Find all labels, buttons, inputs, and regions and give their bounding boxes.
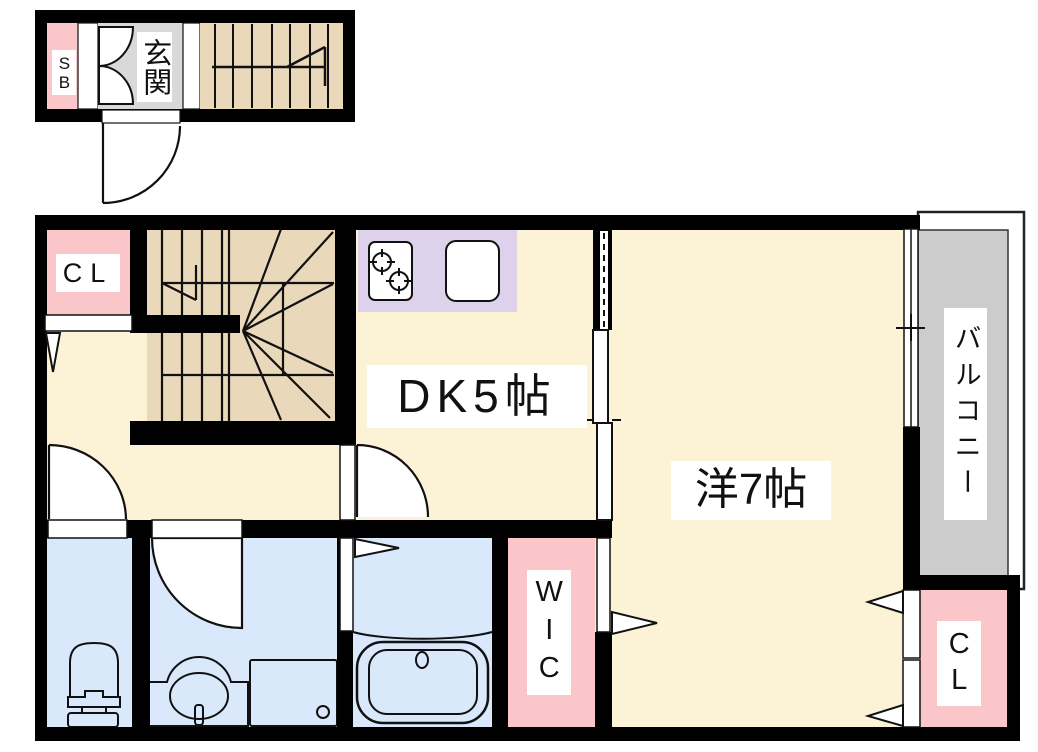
toilet-door-opening [48,520,127,538]
floor-plan: SB 玄関 CL DK5帖 洋7帖 バルコニー WIC CL [0,0,1038,752]
bathroom-door-panel [340,538,353,631]
stove-icon [369,242,412,300]
partition-panel-2 [597,423,612,520]
dining-kitchen-label: DK5帖 [367,365,587,428]
kitchen-sink-icon [446,241,499,301]
front-door-swing [103,126,180,203]
western-room-label: 洋7帖 [671,461,831,520]
closet-bottom-door-upper [903,590,920,658]
closet-top-label: CL [56,254,120,292]
front-door-opening [102,110,180,123]
balcony-label: バルコニー [944,308,987,520]
shoe-box-door [78,23,98,109]
entrance-opening [183,23,200,109]
stairs-landing-wall [147,315,240,333]
dk-door-opening [340,445,355,520]
bathroom-area [353,538,492,727]
closet-bottom-door-lower [903,660,920,727]
washroom-door-opening [152,520,242,538]
entrance-section [35,10,355,203]
walk-in-closet-label: WIC [527,570,571,695]
closet-bottom-label: CL [937,621,981,706]
shoe-box-label: SB [52,50,76,95]
partition-panel-1 [593,330,608,423]
entrance-label: 玄関 [137,32,172,102]
wic-door-panel [597,538,610,632]
closet-top-sliding-door [45,315,132,331]
